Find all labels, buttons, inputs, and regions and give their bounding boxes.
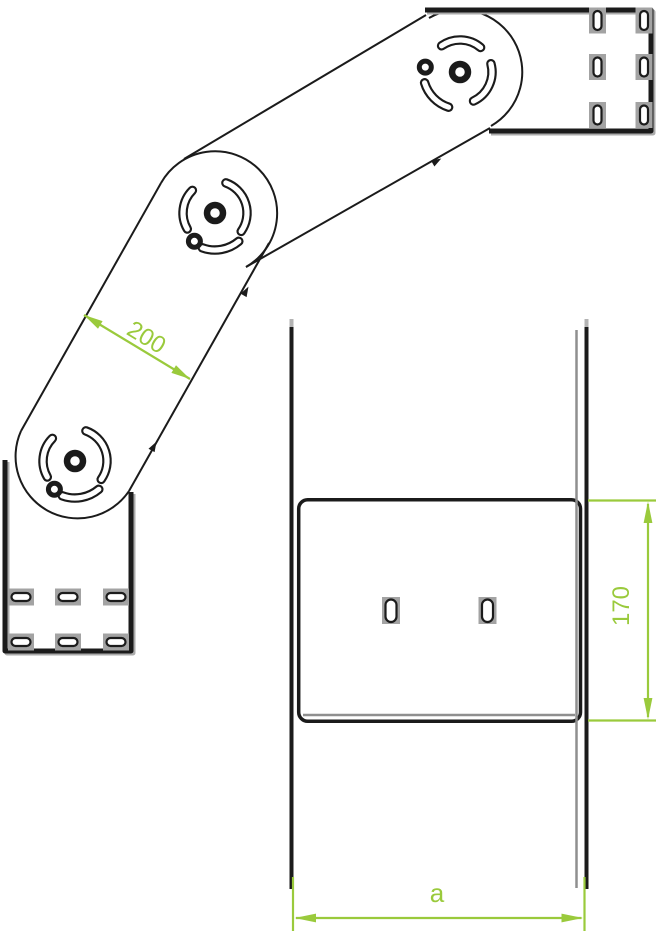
pivot-bolt (67, 453, 83, 469)
arrowhead (84, 315, 103, 329)
pivot-bolt (207, 205, 223, 221)
arrowhead (644, 698, 653, 720)
connector-plate-outline (299, 500, 581, 722)
mounting-slot (59, 593, 78, 601)
hinge-joint-top (419, 40, 492, 107)
arrowhead (171, 365, 190, 379)
pivot-bolt (452, 64, 468, 80)
mounting-slot (107, 593, 126, 601)
arm-edge-line (246, 128, 490, 267)
mounting-slot (107, 638, 126, 646)
end-plate-outline (425, 10, 651, 131)
straight-section-view: 170 a (292, 319, 657, 931)
mounting-slot (386, 600, 397, 623)
mounting-slot (594, 58, 602, 77)
hinge-joint-middle (183, 183, 247, 250)
hinge-end-cap-arc (16, 431, 129, 518)
mounting-slot (640, 58, 648, 77)
mounting-slot (594, 106, 602, 125)
dimension-tray-width: a (293, 877, 585, 931)
mounting-slot (640, 11, 648, 30)
mounting-slot (12, 593, 31, 601)
arrowhead (644, 502, 653, 524)
technical-drawing-canvas: 200 170 (0, 0, 657, 931)
mounting-slot (594, 11, 602, 30)
arm-edge-line (129, 243, 269, 491)
rivet (419, 61, 431, 73)
adjustable-bend-drawing: 200 170 (0, 0, 657, 931)
edge-tick (149, 442, 157, 453)
dimension-arm-width: 200 (84, 315, 190, 379)
arm-edge-line (184, 15, 426, 159)
dimension-label-200: 200 (122, 316, 170, 360)
rivet (188, 235, 200, 247)
arrowhead (562, 914, 584, 923)
dimension-connector-height: 170 (588, 501, 656, 721)
mounting-slot (59, 638, 78, 646)
dimension-label-170: 170 (608, 586, 635, 626)
rivet (48, 483, 60, 495)
mounting-slot (482, 600, 493, 623)
hinge-joint-bottom (43, 431, 107, 498)
end-plate-top-right (425, 8, 653, 132)
mounting-slot (640, 106, 648, 125)
mounting-slot (12, 638, 31, 646)
arrowhead (295, 914, 317, 923)
arm-edge-line (21, 183, 161, 431)
dimension-label-a: a (430, 878, 445, 908)
